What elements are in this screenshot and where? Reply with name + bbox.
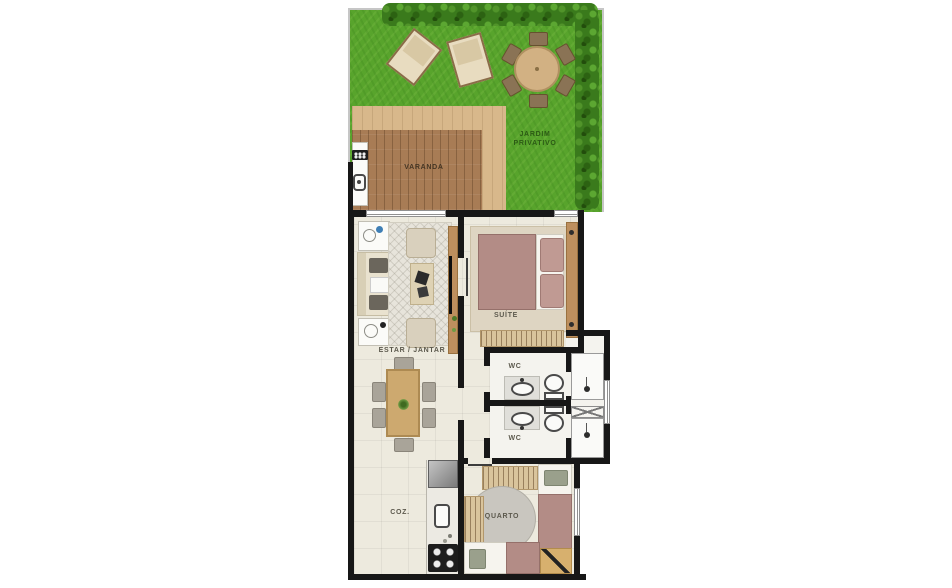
bedroom-window-line — [577, 489, 578, 537]
garden-label: JARDIM PRIVATIVO — [500, 130, 570, 148]
garden-path — [352, 106, 506, 130]
wall-wing-right-a — [604, 336, 610, 380]
washbasin-icon — [511, 412, 534, 426]
dining-chair — [422, 408, 436, 428]
bed-pillow — [540, 274, 564, 308]
wc-bottom-label: WC — [498, 434, 532, 443]
sliding-door-line — [367, 214, 445, 215]
tv-icon — [449, 256, 452, 314]
faucet-dot — [520, 378, 524, 382]
dining-chair — [372, 408, 386, 428]
wall-suite-right — [578, 210, 584, 350]
decor-plate — [363, 229, 376, 242]
wall-center-b — [458, 296, 464, 388]
faucet-dot — [520, 426, 524, 430]
suite-window — [554, 210, 578, 217]
living-label: ESTAR / JANTAR — [364, 346, 460, 355]
bed-pillow — [469, 549, 486, 569]
sofa-cushion — [369, 258, 388, 273]
suite-window-line — [555, 214, 577, 215]
wall-top-living2 — [446, 210, 458, 217]
kitchen-item-dot — [448, 534, 452, 538]
wall-center-a — [458, 210, 464, 258]
wall-top-suite — [458, 210, 554, 217]
suite-door-leaf — [466, 258, 468, 296]
dining-chair — [372, 382, 386, 402]
kitchen-sink-icon — [434, 504, 450, 528]
table-center-dot — [535, 67, 539, 71]
sliding-door — [366, 210, 446, 217]
wing-window — [604, 380, 610, 424]
hedge-top — [382, 3, 598, 26]
toilet-icon — [544, 414, 564, 432]
armchair — [406, 228, 436, 258]
toilet-tank — [544, 392, 564, 400]
grill-icon — [352, 150, 368, 160]
bed-pillow — [540, 238, 564, 272]
dining-chair — [394, 438, 414, 452]
wc-top-label: WC — [498, 362, 532, 371]
wall-bottom — [348, 574, 586, 580]
coffee-table-decor — [417, 286, 429, 298]
garden-path-side — [482, 130, 506, 210]
wall-top-living — [348, 210, 366, 217]
armchair — [406, 318, 436, 348]
wc-top-vanity — [504, 376, 540, 400]
stove-icon — [428, 544, 458, 572]
balcony-label: VARANDA — [384, 163, 464, 172]
kitchen-label: COZ. — [380, 508, 420, 517]
single-bed-blanket — [506, 542, 540, 574]
bedroom-window — [574, 488, 580, 536]
bedroom-label: QUARTO — [470, 512, 534, 521]
sofa-back — [358, 253, 366, 315]
bed-pillow — [544, 470, 568, 486]
table-plant — [398, 399, 409, 410]
kitchen-item-dot — [443, 539, 447, 543]
single-bed-blanket — [538, 494, 572, 550]
wall-bedroom-right-b — [574, 536, 580, 580]
garden-chair — [529, 32, 548, 46]
fridge-icon — [428, 460, 458, 488]
shower-drain-icon — [584, 386, 590, 392]
plant-dot — [452, 316, 457, 321]
garden-table-set — [514, 46, 560, 92]
coffee-table — [410, 263, 434, 305]
floor-plan: JARDIM PRIVATIVO VARANDA ESTAR / JANTAR — [0, 0, 952, 588]
decor-plate — [364, 324, 378, 338]
double-bed-blanket — [478, 234, 536, 310]
sofa-tray — [370, 277, 390, 293]
suite-closet — [480, 330, 564, 347]
suite-label: SUÍTE — [478, 311, 534, 320]
wall-bedroom-right-a — [574, 458, 580, 488]
nightstand-lamp — [569, 230, 574, 235]
wc-bottom-vanity — [504, 406, 540, 430]
balcony-sink-drain — [357, 180, 361, 184]
nightstand-lamp — [569, 322, 574, 327]
wing-window-line — [607, 381, 608, 425]
shower-stall — [571, 418, 604, 458]
toilet-tank — [544, 406, 564, 414]
shower-bench — [571, 406, 604, 418]
decor-dot — [380, 322, 386, 328]
hedge-right — [575, 10, 599, 210]
wall-left — [348, 210, 354, 580]
bedroom-desk — [540, 548, 572, 574]
decor-blue — [376, 226, 383, 233]
sofa — [357, 252, 391, 316]
lounge-chair-backrest — [452, 38, 483, 66]
plant-dot — [452, 328, 456, 332]
sofa-cushion — [369, 295, 388, 310]
garden-chair — [529, 94, 548, 108]
shower-stall — [571, 353, 604, 400]
washbasin-icon — [511, 382, 534, 396]
dining-table — [386, 369, 420, 437]
dining-chair — [422, 382, 436, 402]
headboard-panel — [566, 222, 578, 338]
toilet-icon — [544, 374, 564, 392]
wall-left-upper — [348, 162, 353, 212]
shower-drain-icon — [584, 432, 590, 438]
coffee-table-decor — [414, 270, 429, 285]
